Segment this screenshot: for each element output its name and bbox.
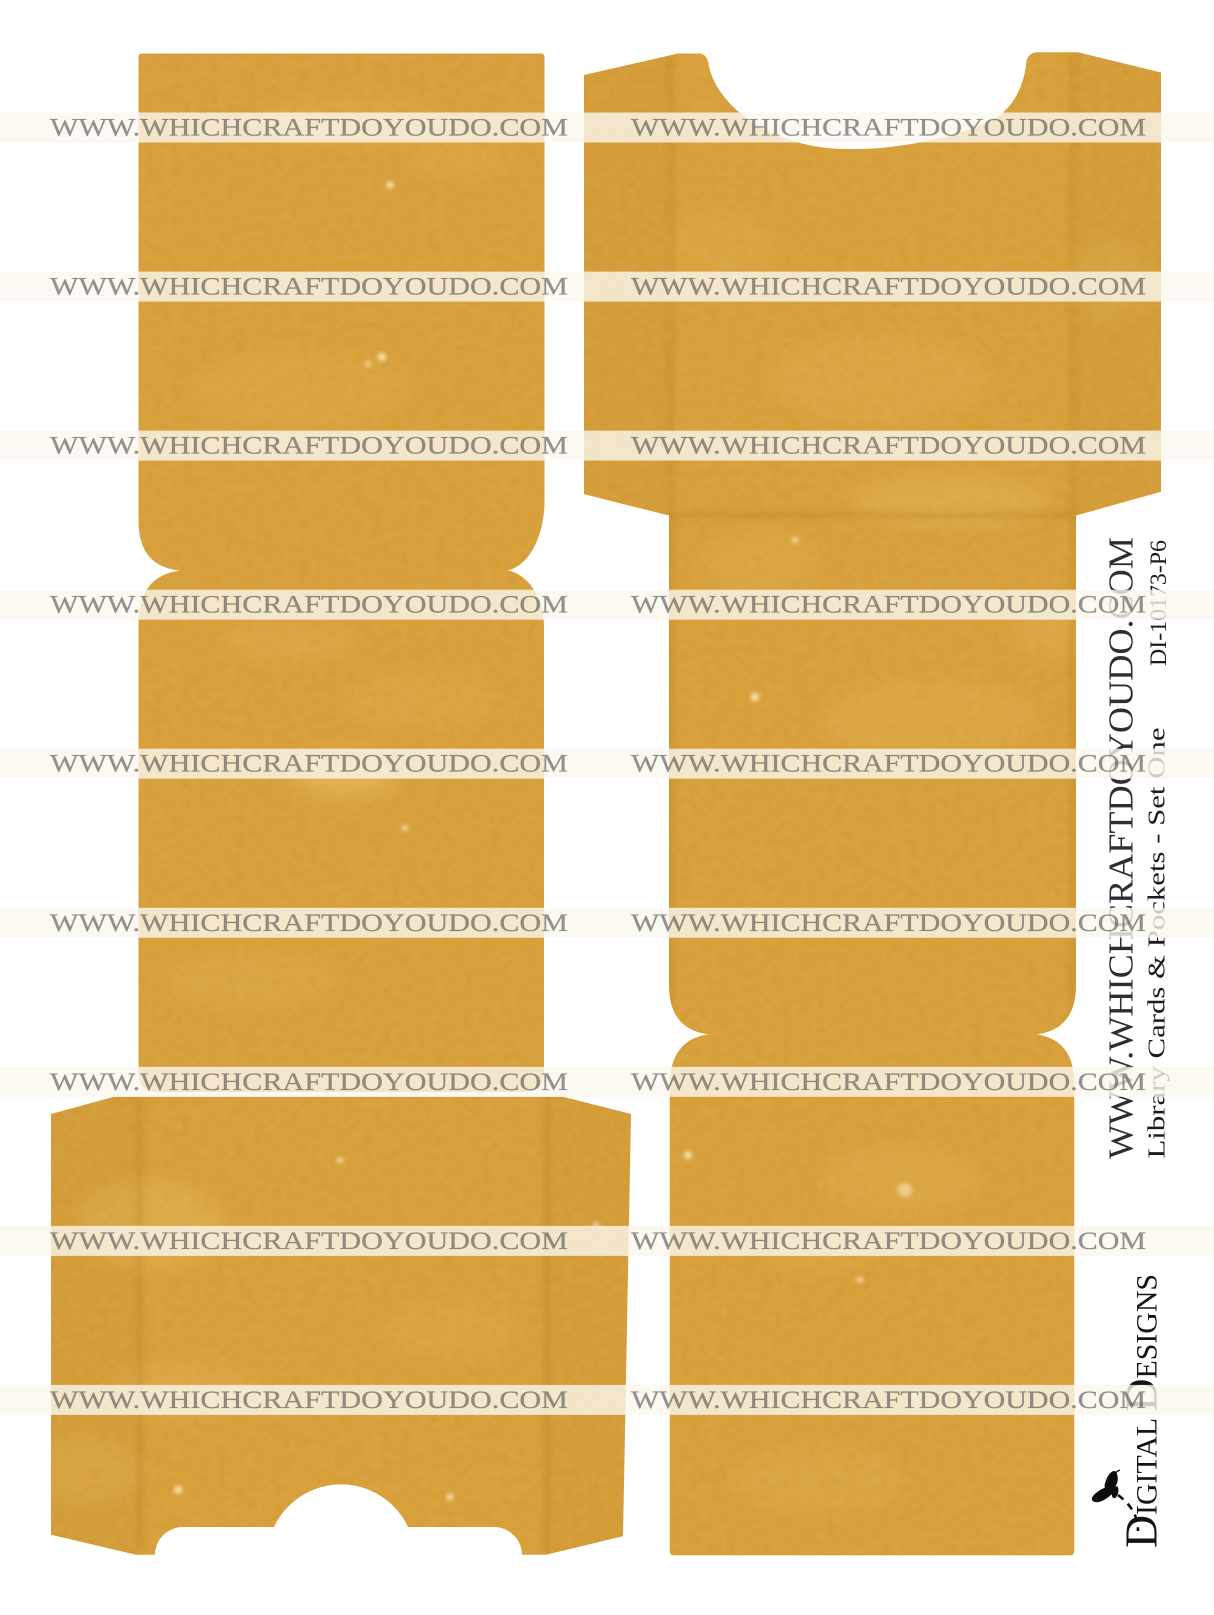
svg-text:WWW.WHICHCRAFTDOYOUDO.COM: WWW.WHICHCRAFTDOYOUDO.COM (50, 910, 568, 937)
svg-text:WWW.WHICHCRAFTDOYOUDO.COM: WWW.WHICHCRAFTDOYOUDO.COM (50, 592, 568, 619)
svg-text:WWW.WHICHCRAFTDOYOUDO.COM: WWW.WHICHCRAFTDOYOUDO.COM (631, 751, 1146, 778)
svg-text:WWW.WHICHCRAFTDOYOUDO.COM: WWW.WHICHCRAFTDOYOUDO.COM (631, 1387, 1146, 1414)
svg-text:WWW.WHICHCRAFTDOYOUDO.COM: WWW.WHICHCRAFTDOYOUDO.COM (50, 1069, 568, 1096)
svg-text:WWW.WHICHCRAFTDOYOUDO.COM: WWW.WHICHCRAFTDOYOUDO.COM (631, 910, 1146, 937)
svg-text:WWW.WHICHCRAFTDOYOUDO.COM: WWW.WHICHCRAFTDOYOUDO.COM (50, 115, 568, 142)
svg-text:WWW.WHICHCRAFTDOYOUDO.COM: WWW.WHICHCRAFTDOYOUDO.COM (50, 751, 568, 778)
svg-text:WWW.WHICHCRAFTDOYOUDO.COM: WWW.WHICHCRAFTDOYOUDO.COM (1102, 537, 1141, 1159)
svg-text:WWW.WHICHCRAFTDOYOUDO.COM: WWW.WHICHCRAFTDOYOUDO.COM (631, 115, 1146, 142)
svg-text:WWW.WHICHCRAFTDOYOUDO.COM: WWW.WHICHCRAFTDOYOUDO.COM (631, 1069, 1146, 1096)
svg-text:WWW.WHICHCRAFTDOYOUDO.COM: WWW.WHICHCRAFTDOYOUDO.COM (631, 592, 1146, 619)
svg-text:WWW.WHICHCRAFTDOYOUDO.COM: WWW.WHICHCRAFTDOYOUDO.COM (50, 274, 568, 301)
svg-text:WWW.WHICHCRAFTDOYOUDO.COM: WWW.WHICHCRAFTDOYOUDO.COM (631, 274, 1146, 301)
svg-text:WWW.WHICHCRAFTDOYOUDO.COM: WWW.WHICHCRAFTDOYOUDO.COM (631, 1228, 1146, 1255)
svg-text:WWW.WHICHCRAFTDOYOUDO.COM: WWW.WHICHCRAFTDOYOUDO.COM (50, 433, 568, 460)
svg-text:WWW.WHICHCRAFTDOYOUDO.COM: WWW.WHICHCRAFTDOYOUDO.COM (50, 1228, 568, 1255)
svg-text:WWW.WHICHCRAFTDOYOUDO.COM: WWW.WHICHCRAFTDOYOUDO.COM (631, 433, 1146, 460)
svg-text:WWW.WHICHCRAFTDOYOUDO.COM: WWW.WHICHCRAFTDOYOUDO.COM (50, 1387, 568, 1414)
